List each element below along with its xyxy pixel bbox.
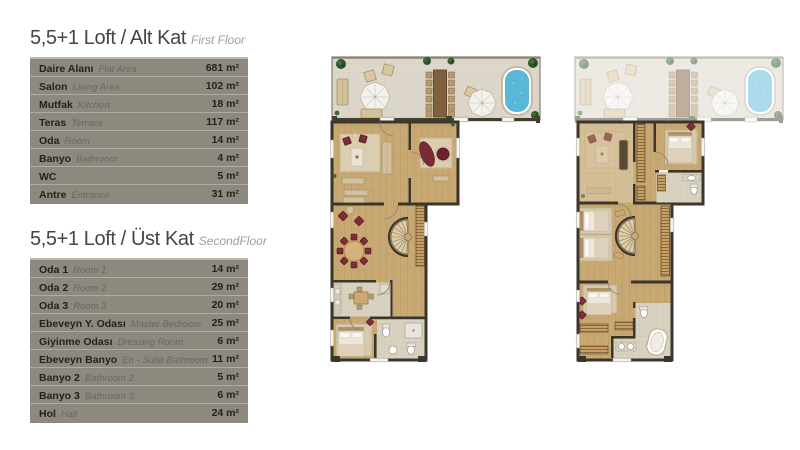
table-row: Giyinme OdasıDressing Room6 m²: [30, 332, 248, 350]
room-area-value: 6 m²: [217, 389, 239, 401]
table-row: AntreEntrance31 m²: [30, 185, 248, 202]
second-floor-plan: [575, 57, 783, 362]
table-row: Oda 3Room 320 m²: [30, 296, 248, 314]
title-english: First Floor: [191, 33, 245, 47]
panel-title-second-floor: 5,5+1 Loft / Üst KatSecondFloor: [30, 228, 248, 251]
title-english: SecondFloor: [199, 234, 267, 248]
room-label-turkish: Banyo 2: [39, 372, 80, 384]
room-area-value: 18 m²: [212, 98, 239, 110]
room-label-english: Entrance: [71, 190, 109, 201]
table-row: TerasTerrace117 m²: [30, 113, 248, 131]
table-row: Daire AlanıFlat Area681 m²: [30, 59, 248, 77]
room-area-value: 31 m²: [212, 188, 239, 200]
room-label-turkish: Hol: [39, 408, 56, 420]
room-label-turkish: Salon: [39, 81, 68, 93]
room-label-turkish: Ebeveyn Banyo: [39, 354, 117, 366]
page: 5,5+1 Loft / Alt KatFirst Floor Daire Al…: [0, 0, 800, 450]
room-label-turkish: Mutfak: [39, 99, 73, 111]
room-area-value: 25 m²: [212, 317, 239, 329]
table-row: Ebeveyn Y. OdasıMaster Bedroom25 m²: [30, 314, 248, 332]
room-area-value: 5 m²: [217, 170, 239, 182]
room-label: Oda 3Room 3: [39, 296, 106, 314]
room-label-turkish: WC: [39, 171, 57, 183]
room-label-turkish: Antre: [39, 189, 66, 201]
area-panel-second-floor: 5,5+1 Loft / Üst KatSecondFloor Oda 1Roo…: [30, 228, 248, 423]
room-label-english: Terrace: [71, 118, 103, 129]
room-label-english: Flat Area: [98, 64, 136, 75]
room-label: AntreEntrance: [39, 185, 109, 203]
room-area-value: 4 m²: [217, 152, 239, 164]
area-table-second-floor: Oda 1Room 114 m²Oda 2Room 229 m²Oda 3Roo…: [30, 258, 248, 423]
room-label-english: Room 1: [73, 265, 106, 276]
room-area-value: 117 m²: [206, 116, 239, 128]
room-area-value: 681 m²: [206, 62, 239, 74]
room-area-value: 14 m²: [212, 134, 239, 146]
room-label-english: Living Area: [73, 82, 120, 93]
room-area-value: 29 m²: [212, 281, 239, 293]
area-panel-first-floor: 5,5+1 Loft / Alt KatFirst Floor Daire Al…: [30, 27, 248, 204]
room-label-turkish: Banyo 3: [39, 390, 80, 402]
floor-plans: [330, 54, 793, 368]
table-row: MutfakKitchen18 m²: [30, 95, 248, 113]
room-label: TerasTerrace: [39, 113, 103, 131]
room-area-value: 6 m²: [217, 335, 239, 347]
room-label-english: Room: [64, 136, 89, 147]
room-label-english: Kitchen: [78, 100, 110, 111]
room-label-english: Bathroom 3: [85, 391, 134, 402]
room-area-value: 20 m²: [212, 299, 239, 311]
room-label: Oda 1Room 1: [39, 260, 106, 278]
room-label: Daire AlanıFlat Area: [39, 59, 137, 77]
table-row: Ebeveyn BanyoEn - Suite Bathroom11 m²: [30, 350, 248, 368]
room-label-english: Master Bedroom: [131, 319, 201, 330]
room-label: HolHall: [39, 404, 77, 422]
room-label-english: Room 3: [73, 301, 106, 312]
room-label-turkish: Daire Alanı: [39, 63, 93, 75]
room-label: WC: [39, 167, 62, 185]
room-label-english: Room 2: [73, 283, 106, 294]
room-label-english: En - Suite Bathroom: [122, 355, 208, 366]
floor-plans-svg: [330, 54, 793, 368]
room-label: Banyo 3Bathroom 3: [39, 386, 134, 404]
room-label-turkish: Giyinme Odası: [39, 336, 113, 348]
table-row: BanyoBathroom4 m²: [30, 149, 248, 167]
area-table-first-floor: Daire AlanıFlat Area681 m²SalonLiving Ar…: [30, 57, 248, 204]
room-area-value: 5 m²: [217, 371, 239, 383]
room-label: SalonLiving Area: [39, 77, 120, 95]
room-label: Oda 2Room 2: [39, 278, 106, 296]
room-area-value: 102 m²: [206, 80, 239, 92]
panel-title-first-floor: 5,5+1 Loft / Alt KatFirst Floor: [30, 27, 248, 50]
room-area-value: 11 m²: [212, 353, 239, 365]
room-label-english: Hall: [61, 409, 77, 420]
room-label-turkish: Oda 3: [39, 300, 68, 312]
room-area-value: 14 m²: [212, 263, 239, 275]
room-label-turkish: Oda 1: [39, 264, 68, 276]
room-label: Banyo 2Bathroom 2: [39, 368, 134, 386]
room-label-turkish: Teras: [39, 117, 66, 129]
title-turkish: 5,5+1 Loft / Üst Kat: [30, 228, 194, 250]
room-label-english: Bathroom: [76, 154, 117, 165]
room-label: Giyinme OdasıDressing Room: [39, 332, 183, 350]
room-label: BanyoBathroom: [39, 149, 117, 167]
room-label-turkish: Banyo: [39, 153, 71, 165]
room-area-value: 24 m²: [212, 407, 239, 419]
title-turkish: 5,5+1 Loft / Alt Kat: [30, 27, 186, 49]
table-row: HolHall24 m²: [30, 404, 248, 421]
room-label: OdaRoom: [39, 131, 90, 149]
table-row: Banyo 2Bathroom 25 m²: [30, 368, 248, 386]
table-row: SalonLiving Area102 m²: [30, 77, 248, 95]
table-row: Banyo 3Bathroom 36 m²: [30, 386, 248, 404]
first-floor-plan: [330, 57, 540, 362]
room-label-english: Bathroom 2: [85, 373, 134, 384]
table-row: Oda 1Room 114 m²: [30, 260, 248, 278]
room-label-turkish: Ebeveyn Y. Odası: [39, 318, 126, 330]
table-row: OdaRoom14 m²: [30, 131, 248, 149]
room-label-turkish: Oda 2: [39, 282, 68, 294]
room-label: Ebeveyn Y. OdasıMaster Bedroom: [39, 314, 201, 332]
room-label: MutfakKitchen: [39, 95, 110, 113]
room-label: Ebeveyn BanyoEn - Suite Bathroom: [39, 350, 208, 368]
room-label-turkish: Oda: [39, 135, 59, 147]
table-row: WC5 m²: [30, 167, 248, 185]
table-row: Oda 2Room 229 m²: [30, 278, 248, 296]
room-label-english: Dressing Room: [118, 337, 183, 348]
